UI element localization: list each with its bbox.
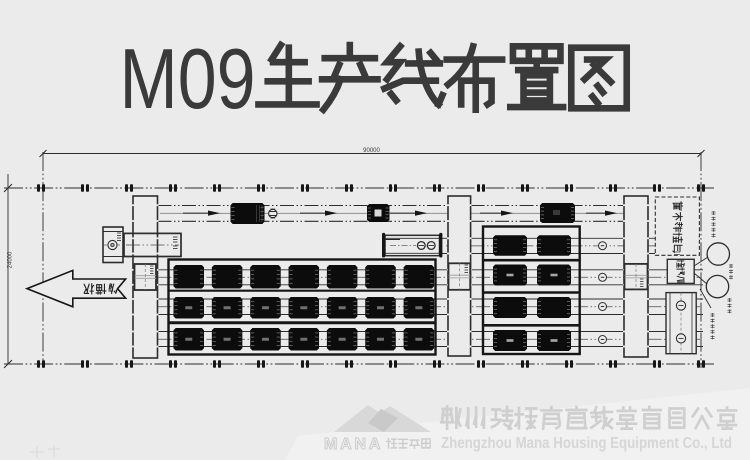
svg-text:24000: 24000 [8, 251, 14, 268]
svg-text:M09: M09 [120, 32, 256, 127]
svg-text:MANA: MANA [324, 436, 383, 453]
svg-text:90000: 90000 [363, 148, 380, 154]
svg-text:Zhengzhou Mana Housing Equipme: Zhengzhou Mana Housing Equipment Co., Lt… [441, 435, 732, 452]
